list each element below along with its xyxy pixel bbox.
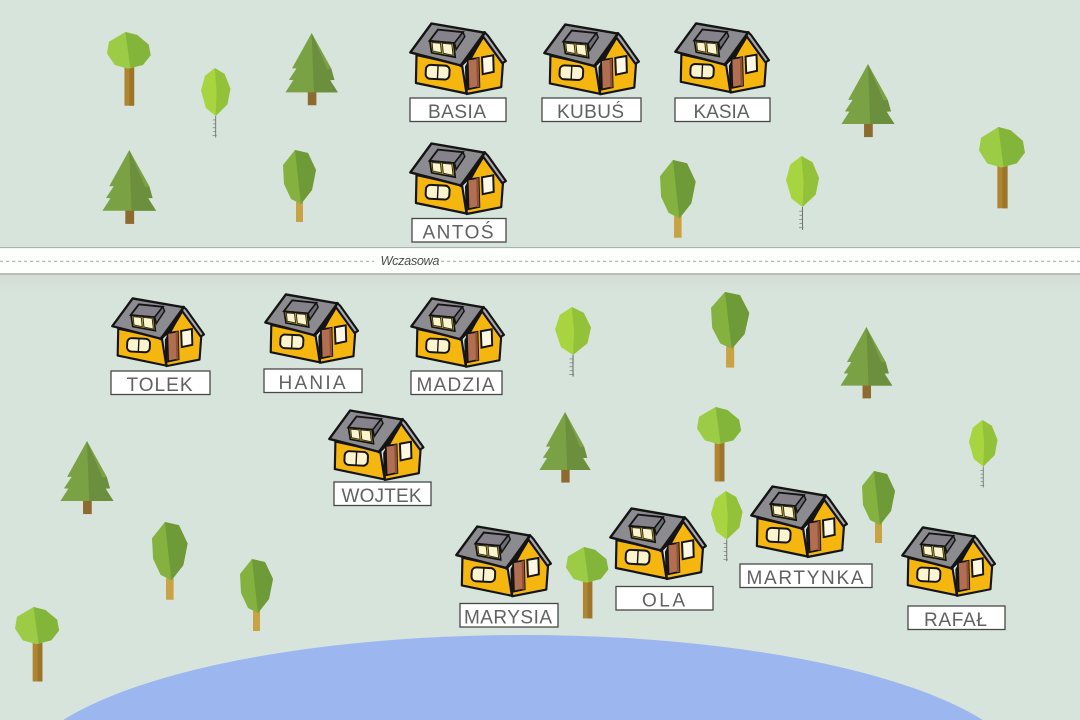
- svg-text:TOLEK: TOLEK: [127, 375, 195, 396]
- svg-text:HANIA: HANIA: [279, 373, 348, 394]
- svg-text:KUBUŚ: KUBUŚ: [557, 101, 626, 123]
- svg-text:RAFAŁ: RAFAŁ: [924, 610, 989, 631]
- svg-text:ANTOŚ: ANTOŚ: [423, 222, 496, 244]
- svg-text:Wczasowa: Wczasowa: [381, 253, 440, 268]
- svg-text:MARTYNKA: MARTYNKA: [747, 568, 866, 589]
- svg-text:OLA: OLA: [642, 591, 687, 612]
- svg-text:KASIA: KASIA: [694, 102, 752, 123]
- svg-text:MADZIA: MADZIA: [417, 375, 497, 396]
- svg-text:BASIA: BASIA: [428, 102, 488, 123]
- svg-text:MARYSIA: MARYSIA: [464, 608, 554, 629]
- svg-text:WOJTEK: WOJTEK: [342, 486, 424, 507]
